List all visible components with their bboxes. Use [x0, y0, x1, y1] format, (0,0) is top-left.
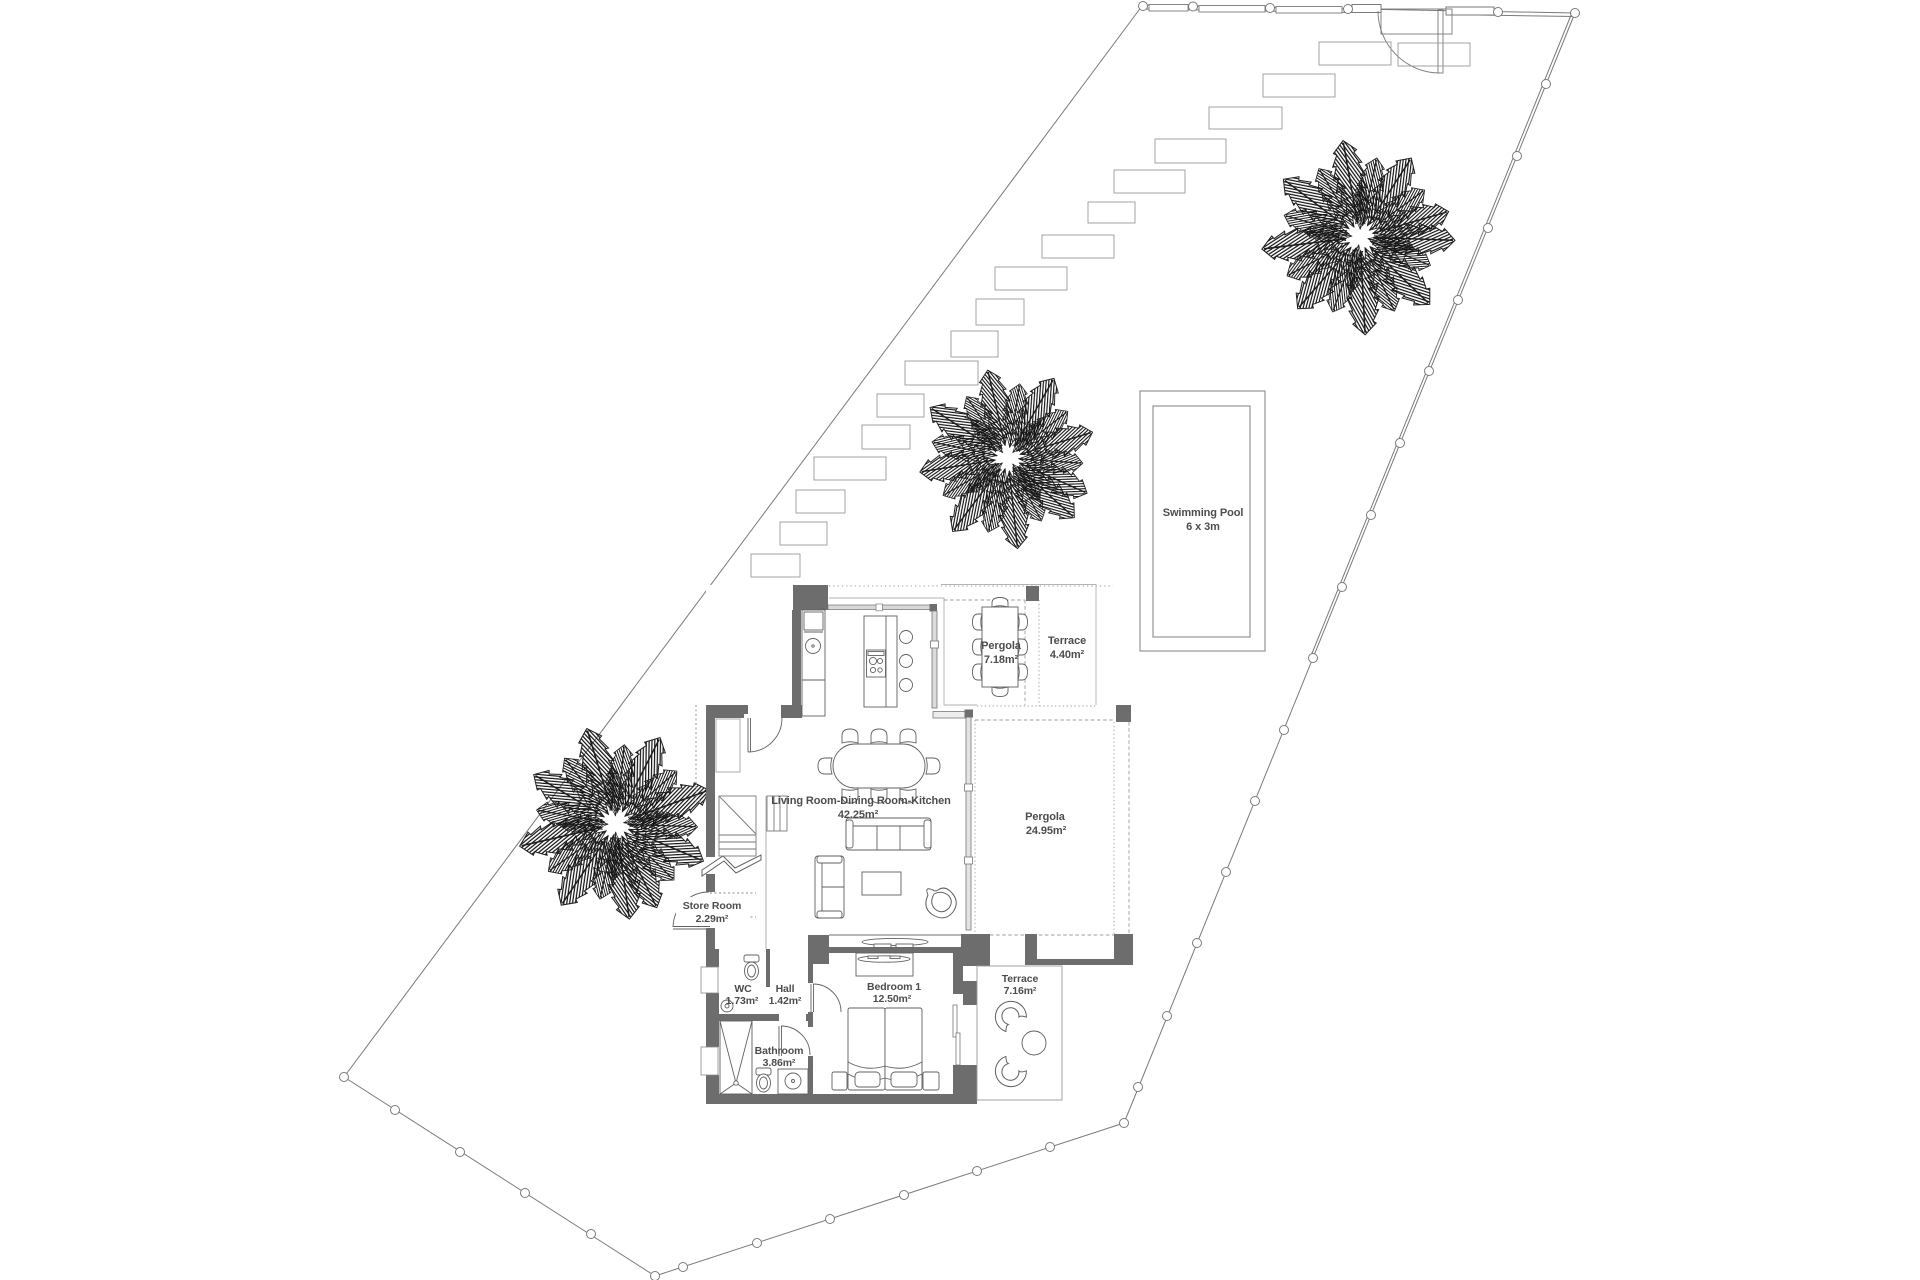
- svg-text:Store Room: Store Room: [683, 900, 742, 912]
- svg-text:Terrace: Terrace: [1002, 973, 1039, 985]
- svg-text:24.95m²: 24.95m²: [1026, 825, 1067, 837]
- svg-text:WC: WC: [734, 983, 752, 995]
- svg-text:Hall: Hall: [776, 983, 795, 995]
- svg-text:Bedroom 1: Bedroom 1: [867, 981, 921, 993]
- svg-text:Swimming Pool: Swimming Pool: [1163, 507, 1244, 519]
- svg-text:1.73m²: 1.73m²: [726, 995, 759, 1007]
- svg-text:1.42m²: 1.42m²: [769, 995, 802, 1007]
- svg-text:42.25m²: 42.25m²: [838, 809, 879, 821]
- svg-text:Pergola: Pergola: [1025, 811, 1066, 823]
- svg-text:6 x 3m: 6 x 3m: [1186, 521, 1220, 533]
- svg-text:Bathroom: Bathroom: [755, 1045, 804, 1057]
- svg-text:4.40m²: 4.40m²: [1050, 649, 1085, 661]
- svg-text:2.29m²: 2.29m²: [696, 913, 729, 925]
- svg-text:3.86m²: 3.86m²: [763, 1057, 796, 1069]
- svg-text:Living Room-Dining Room-Kitche: Living Room-Dining Room-Kitchen: [771, 795, 951, 807]
- svg-text:7.16m²: 7.16m²: [1004, 985, 1037, 997]
- svg-text:7.18m²: 7.18m²: [984, 654, 1019, 666]
- svg-text:Terrace: Terrace: [1048, 635, 1086, 647]
- svg-text:Pergola: Pergola: [981, 640, 1022, 652]
- svg-text:12.50m²: 12.50m²: [873, 993, 912, 1005]
